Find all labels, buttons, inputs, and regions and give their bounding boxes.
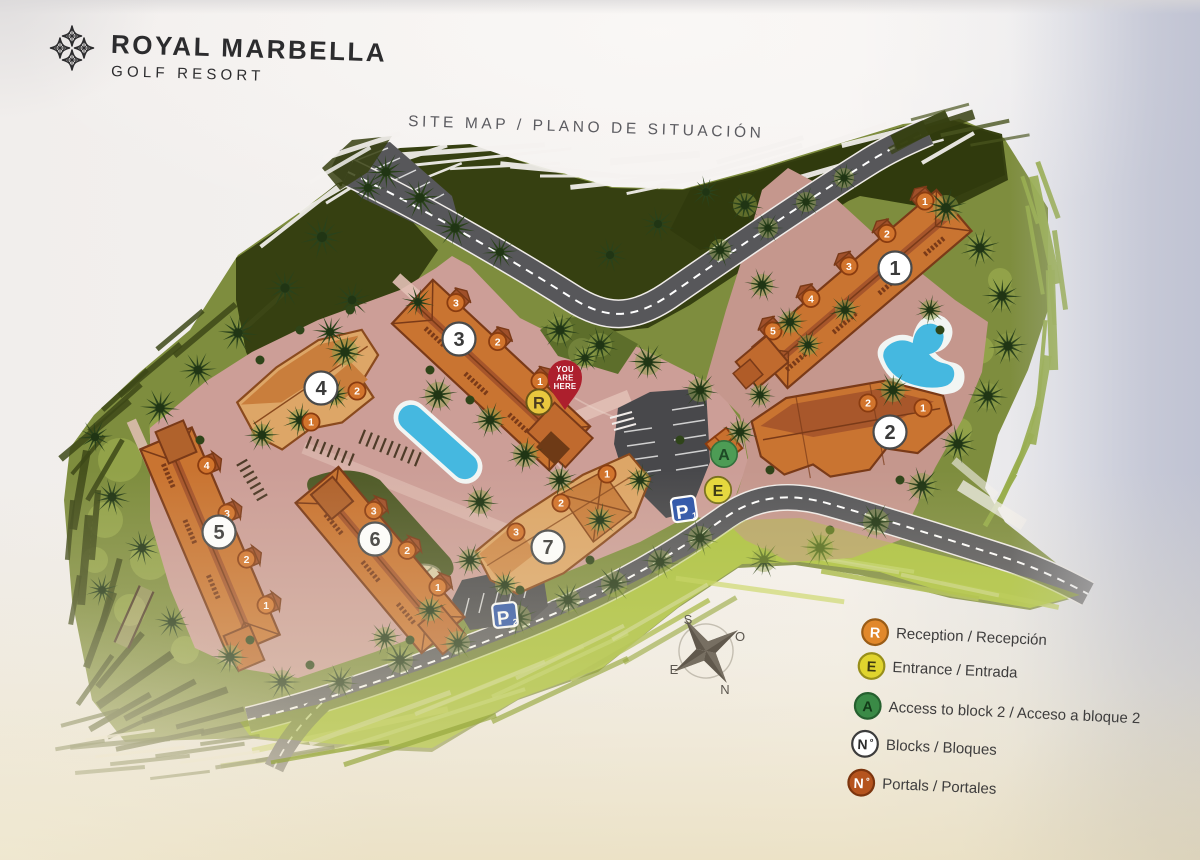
- svg-text:N: N: [853, 775, 864, 791]
- svg-text:1: 1: [537, 376, 543, 388]
- svg-text:2: 2: [884, 228, 890, 240]
- svg-text:R: R: [533, 395, 545, 413]
- svg-text:3: 3: [453, 297, 459, 309]
- svg-text:E: E: [866, 659, 877, 675]
- svg-text:R: R: [869, 625, 881, 641]
- svg-text:A: A: [718, 447, 730, 464]
- svg-text:N: N: [857, 736, 868, 752]
- svg-text:A: A: [862, 699, 874, 715]
- svg-text:2: 2: [884, 422, 895, 444]
- svg-text:1: 1: [308, 417, 314, 429]
- svg-text:2: 2: [865, 398, 871, 410]
- svg-text:O: O: [735, 629, 745, 644]
- svg-text:1: 1: [920, 403, 926, 415]
- svg-text:HERE: HERE: [554, 382, 577, 391]
- svg-text:2: 2: [354, 386, 360, 398]
- svg-text:1: 1: [922, 196, 928, 208]
- svg-text:3: 3: [453, 329, 464, 351]
- svg-text:1: 1: [889, 258, 900, 280]
- svg-text:5: 5: [770, 326, 776, 338]
- svg-text:4: 4: [315, 378, 327, 400]
- svg-text:3: 3: [846, 261, 852, 273]
- svg-text:4: 4: [808, 293, 814, 305]
- svg-text:N: N: [720, 682, 729, 697]
- svg-text:E: E: [670, 662, 679, 677]
- svg-text:2: 2: [495, 336, 501, 348]
- svg-text:S: S: [684, 612, 693, 627]
